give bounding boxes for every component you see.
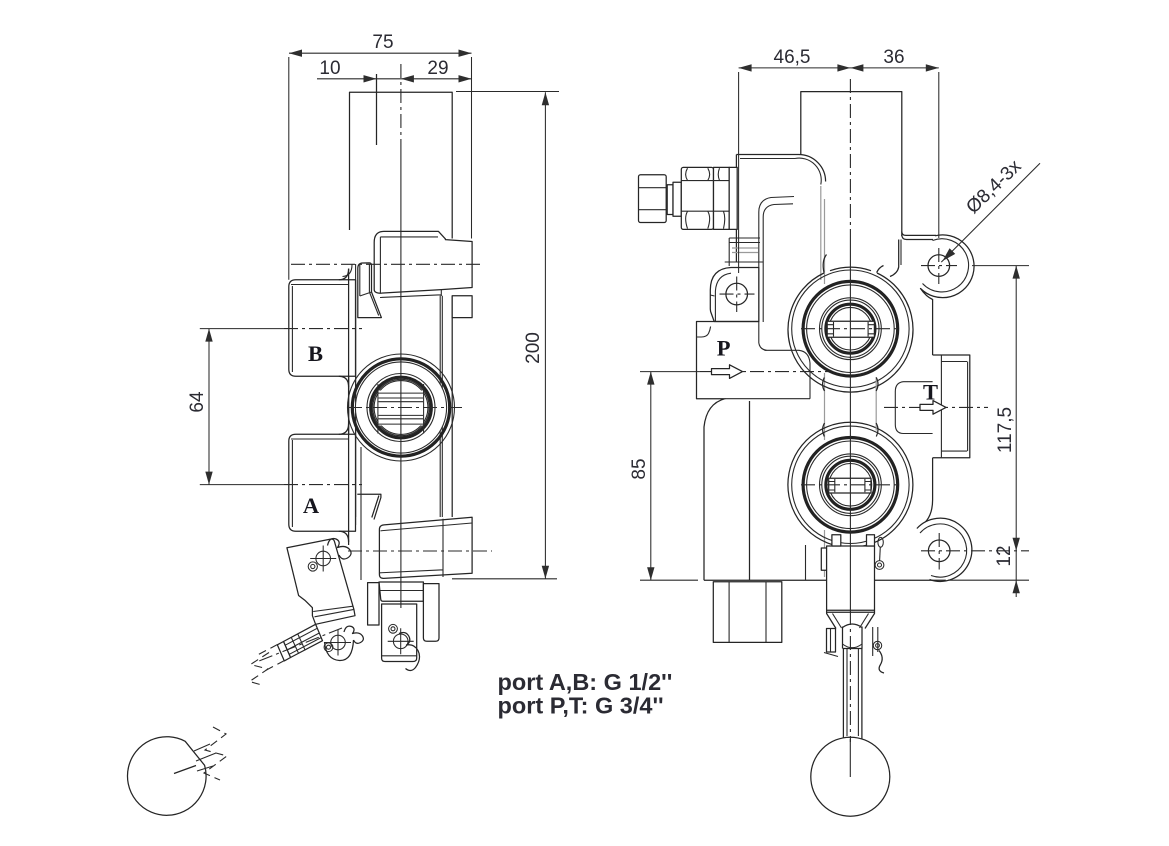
svg-text:64: 64 bbox=[187, 391, 208, 413]
svg-text:P: P bbox=[717, 336, 731, 361]
svg-text:10: 10 bbox=[319, 58, 340, 79]
svg-text:port P,T: G 3/4'': port P,T: G 3/4'' bbox=[498, 693, 664, 719]
svg-text:36: 36 bbox=[883, 47, 904, 68]
svg-text:12: 12 bbox=[994, 545, 1015, 566]
svg-text:85: 85 bbox=[629, 458, 650, 479]
svg-text:A: A bbox=[303, 493, 320, 518]
svg-text:200: 200 bbox=[523, 332, 544, 364]
svg-text:75: 75 bbox=[372, 32, 393, 53]
svg-text:29: 29 bbox=[427, 58, 448, 79]
svg-text:T: T bbox=[923, 380, 938, 405]
svg-text:117,5: 117,5 bbox=[995, 407, 1016, 453]
svg-text:46,5: 46,5 bbox=[774, 47, 811, 68]
svg-text:port A,B: G 1/2'': port A,B: G 1/2'' bbox=[498, 669, 673, 695]
svg-text:B: B bbox=[308, 341, 323, 366]
